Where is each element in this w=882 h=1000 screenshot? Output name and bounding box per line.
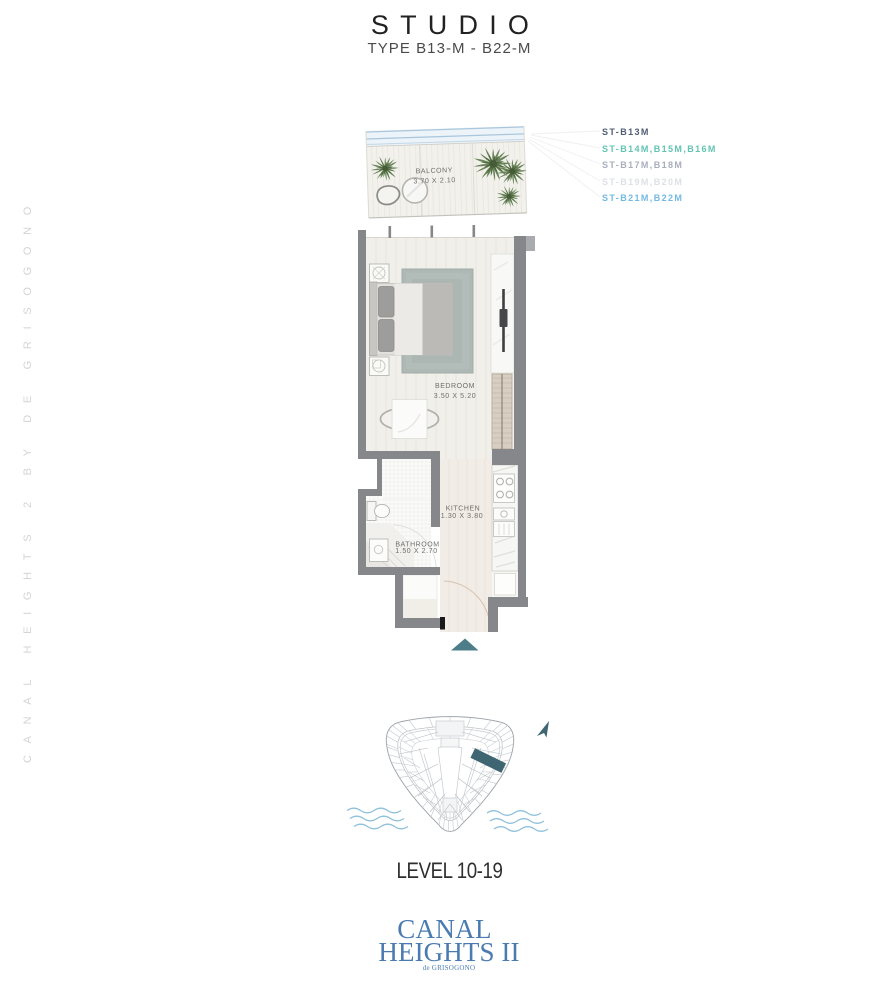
svg-text:KITCHEN: KITCHEN xyxy=(446,506,481,513)
svg-text:BEDROOM: BEDROOM xyxy=(435,383,475,390)
svg-text:3.70 X 2.10: 3.70 X 2.10 xyxy=(413,177,456,185)
svg-text:1.50 X 2.70: 1.50 X 2.70 xyxy=(395,548,437,555)
svg-text:3.50 X 5.20: 3.50 X 5.20 xyxy=(434,393,476,400)
svg-text:BALCONY: BALCONY xyxy=(416,167,454,175)
svg-text:1.30 X 3.80: 1.30 X 3.80 xyxy=(441,513,483,520)
